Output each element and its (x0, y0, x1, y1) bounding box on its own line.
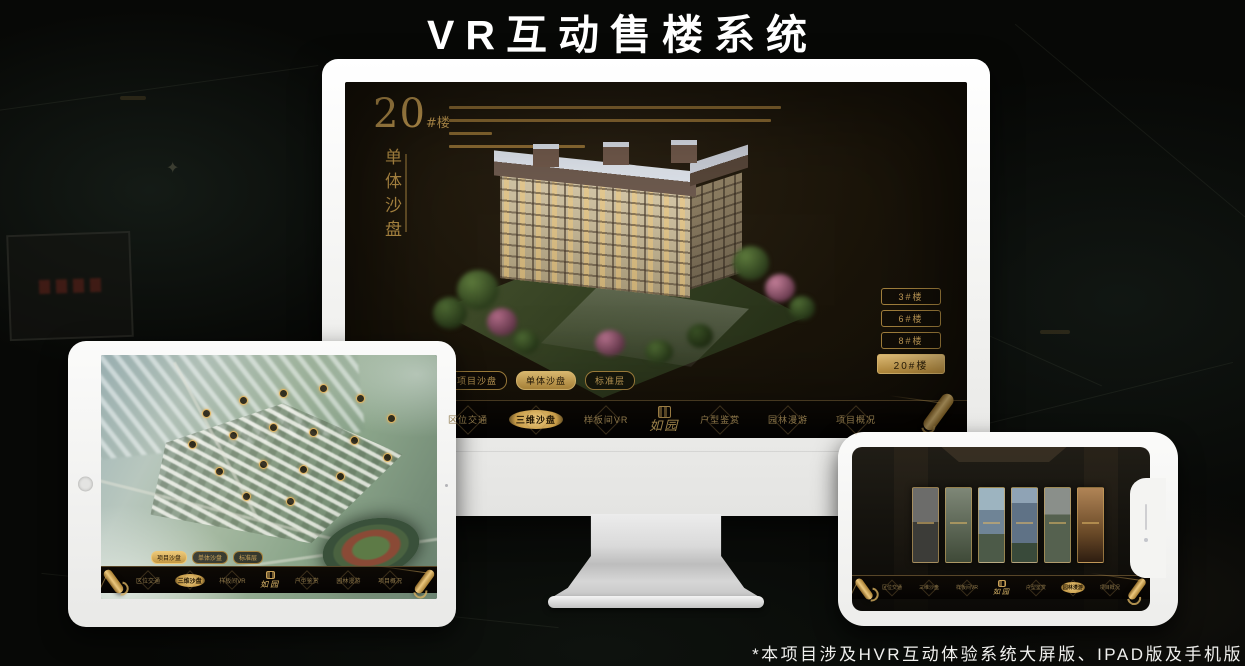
gallery-panel[interactable] (978, 487, 1005, 563)
tree (595, 330, 625, 356)
gallery-panel[interactable] (1044, 487, 1071, 563)
nav-item-floorplans[interactable]: 户型鉴赏 (693, 410, 747, 429)
tree (789, 296, 815, 320)
project-logo-name: 如园 (649, 420, 679, 433)
tree (765, 274, 795, 302)
tablet-camera-dot (445, 484, 448, 487)
gallery-panel-strip (912, 487, 1104, 563)
building-marker[interactable] (299, 465, 308, 474)
view-tab-group: 项目沙盘 单体沙盘 标准层 (447, 371, 635, 390)
tablet-device: 项目沙盘 单体沙盘 标准层 区位交通 三维沙盘 样板间VR 如园 户型鉴赏 园林… (68, 341, 456, 627)
map-label-mark (120, 96, 146, 100)
nav-item-overview[interactable]: 项目概况 (375, 574, 405, 587)
building-marker[interactable] (242, 492, 251, 501)
monitor-stand-base (548, 596, 764, 608)
seal-icon (658, 406, 671, 418)
page-title: VR互动售楼系统 (0, 1, 1245, 61)
phone-bottom-nav: 区位交通 三维沙盘 样板间VR 如园 户型鉴赏 园林漫游 项目概况 (852, 575, 1150, 599)
phone-screen: 区位交通 三维沙盘 样板间VR 如园 户型鉴赏 园林漫游 项目概况 (852, 447, 1150, 611)
floor-button-20[interactable]: 20#楼 (877, 354, 945, 374)
tablet-screen: 项目沙盘 单体沙盘 标准层 区位交通 三维沙盘 样板间VR 如园 户型鉴赏 园林… (101, 355, 437, 599)
tablet-view-tab-group: 项目沙盘 单体沙盘 标准层 (151, 551, 263, 564)
floor-button-3[interactable]: 3#楼 (881, 288, 941, 305)
tablet-home-button[interactable] (78, 477, 93, 492)
nav-item-location[interactable]: 区位交通 (133, 574, 163, 587)
tree (513, 330, 539, 354)
building-marker[interactable] (350, 436, 359, 445)
project-logo: 如园 (260, 571, 280, 589)
compass-star-icon: ✦ (166, 158, 179, 178)
tab-project-sandbox[interactable]: 项目沙盘 (151, 551, 187, 564)
building-marker[interactable] (202, 409, 211, 418)
tablet-bottom-nav: 区位交通 三维沙盘 样板间VR 如园 户型鉴赏 园林漫游 项目概况 (101, 566, 437, 593)
tree (487, 308, 517, 336)
promo-canvas: ✦ 20#楼 单体沙盘 (0, 0, 1245, 666)
building-marker[interactable] (286, 497, 295, 506)
gallery-panel[interactable] (1011, 487, 1038, 563)
project-logo: 如园 (993, 580, 1011, 596)
floor-button-6[interactable]: 6#楼 (881, 310, 941, 327)
footnote-text: *本项目涉及HVR互动体验系统大屏版、IPAD版及手机版 (752, 640, 1243, 665)
roof-dormer (603, 142, 629, 165)
tab-single-sandbox[interactable]: 单体沙盘 (192, 551, 228, 564)
seal-icon (266, 571, 275, 579)
nav-item-garden-tour[interactable]: 园林漫游 (761, 410, 815, 429)
tree (645, 340, 673, 364)
building-marker[interactable] (356, 394, 365, 403)
nav-item-floorplans[interactable]: 户型鉴赏 (292, 574, 322, 587)
nav-item-showroom-vr[interactable]: 样板间VR (216, 574, 248, 587)
tab-standard-floor[interactable]: 标准层 (585, 371, 635, 390)
nav-item-3d-sandbox[interactable]: 三维沙盘 (917, 582, 941, 593)
nav-item-3d-sandbox[interactable]: 三维沙盘 (175, 574, 205, 587)
nav-item-overview[interactable]: 项目概况 (1098, 582, 1122, 593)
nav-item-location[interactable]: 区位交通 (441, 410, 495, 429)
tab-single-sandbox[interactable]: 单体沙盘 (516, 371, 576, 390)
roof-dormer (533, 144, 559, 167)
nav-item-showroom-vr[interactable]: 样板间VR (954, 582, 980, 593)
tree (687, 324, 713, 348)
nav-item-garden-tour[interactable]: 园林漫游 (1061, 582, 1085, 593)
gallery-panel[interactable] (945, 487, 972, 563)
seal-icon (998, 580, 1006, 587)
tree (433, 297, 467, 329)
project-logo: 如园 (649, 406, 679, 433)
roof-dormer (671, 140, 697, 163)
nav-item-location[interactable]: 区位交通 (880, 582, 904, 593)
gallery-panel[interactable] (912, 487, 939, 563)
tab-standard-floor[interactable]: 标准层 (233, 551, 263, 564)
phone-notch (1130, 478, 1166, 578)
nav-item-garden-tour[interactable]: 园林漫游 (333, 574, 363, 587)
nav-item-3d-sandbox[interactable]: 三维沙盘 (509, 410, 563, 429)
gallery-panel[interactable] (1077, 487, 1104, 563)
nav-item-floorplans[interactable]: 户型鉴赏 (1024, 582, 1048, 593)
tree (733, 246, 769, 280)
floor-button-group: 3#楼 6#楼 8#楼 20#楼 (877, 288, 945, 374)
interior-beam (941, 447, 1066, 462)
camera-icon (1144, 538, 1148, 542)
tab-project-sandbox[interactable]: 项目沙盘 (447, 371, 507, 390)
nav-item-showroom-vr[interactable]: 样板间VR (577, 410, 636, 429)
background-plaque (6, 231, 134, 341)
project-logo-name: 如园 (993, 589, 1011, 596)
nav-item-overview[interactable]: 项目概况 (829, 410, 883, 429)
project-logo-name: 如园 (260, 581, 280, 589)
building-model-side (690, 173, 742, 290)
building-marker[interactable] (387, 414, 396, 423)
map-label-mark (1040, 330, 1070, 334)
building-marker[interactable] (259, 460, 268, 469)
speaker-icon (1145, 504, 1147, 530)
building-marker[interactable] (383, 453, 392, 462)
floor-button-8[interactable]: 8#楼 (881, 332, 941, 349)
phone-device: 区位交通 三维沙盘 样板间VR 如园 户型鉴赏 园林漫游 项目概况 (838, 432, 1178, 626)
building-marker[interactable] (229, 431, 238, 440)
